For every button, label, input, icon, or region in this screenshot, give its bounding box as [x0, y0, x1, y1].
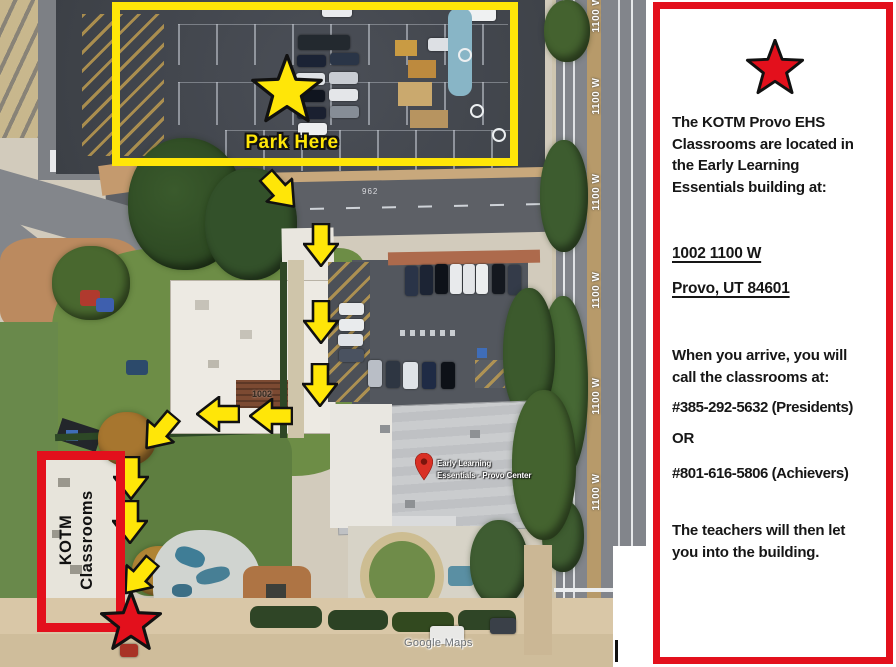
roof-vent [470, 430, 480, 438]
intro-line: the Early Learning [672, 155, 854, 177]
car [405, 266, 418, 296]
street-name-label: 1100 W [591, 267, 603, 313]
hatched-pad [475, 360, 505, 388]
map-corner-tick [615, 640, 618, 662]
car [339, 349, 364, 362]
street-name-label: 1100 W [591, 169, 603, 215]
address-line1: 1002 1100 W [672, 245, 761, 263]
trampoline [126, 360, 148, 375]
building-white-wing [330, 404, 392, 528]
street-name-label: 1100 W [591, 469, 603, 515]
hedge-row [328, 610, 388, 630]
campus-aerial-map: 962 1100 W 1100 W 1100 W 1100 W 1100 W 1… [0, 0, 646, 667]
pin-label-line1: Early Learning [437, 458, 531, 470]
phone-presidents: #385-292-5632 (Presidents) [672, 399, 853, 416]
or-label: OR [672, 430, 694, 447]
google-maps-watermark: Google Maps [404, 637, 473, 649]
car [492, 264, 505, 294]
car [476, 264, 488, 294]
chevron-marking [400, 330, 458, 336]
route-arrow-icon [196, 396, 240, 432]
tree [470, 520, 528, 606]
info-panel: The KOTM Provo EHS Classrooms are locate… [653, 2, 893, 664]
kotm-label-line2: Classrooms [77, 450, 98, 630]
car [450, 264, 462, 294]
pin-label-line2: Essentials - Provo Center [437, 470, 531, 482]
handicap-marking [477, 348, 487, 358]
address-line2: Provo, UT 84601 [672, 280, 790, 298]
route-arrow-icon [303, 223, 339, 267]
street-name-label: 1100 W [591, 373, 603, 419]
map-pin-label: Early Learning Essentials - Provo Center [437, 458, 531, 482]
dino-sculpture [172, 584, 192, 597]
route-arrow-icon [302, 363, 338, 407]
phone-achievers: #801-616-5806 (Achievers) [672, 465, 848, 482]
car [338, 334, 363, 346]
car [339, 319, 364, 331]
street-name-label: 1100 W [591, 0, 603, 37]
kotm-classrooms-label: KOTM Classrooms [56, 450, 100, 630]
intro-line: The KOTM Provo EHS [672, 112, 854, 134]
arrival-line: call the classrooms at: [672, 367, 847, 389]
car [386, 361, 400, 388]
roof-unit [240, 330, 252, 339]
roof-vent [380, 425, 390, 433]
car [463, 264, 475, 294]
vehicle [490, 618, 516, 634]
map-pin-icon [415, 453, 433, 481]
tree [540, 140, 588, 252]
intro-line: Essentials building at: [672, 177, 854, 199]
arrival-line: When you arrive, you will [672, 345, 847, 367]
car [339, 303, 364, 315]
roof-strip [388, 250, 540, 266]
road-number-label: 962 [362, 187, 378, 196]
closing-line: you into the building. [672, 542, 845, 564]
wall [524, 545, 552, 655]
intro-paragraph: The KOTM Provo EHS Classrooms are locate… [672, 112, 854, 198]
park-here-label: Park Here [224, 132, 360, 154]
destination-star-icon [100, 591, 162, 653]
roof-unit [195, 300, 209, 310]
tree [544, 0, 590, 62]
closing-line: The teachers will then let [672, 520, 845, 542]
closing-paragraph: The teachers will then let you into the … [672, 520, 845, 563]
arrival-paragraph: When you arrive, you will call the class… [672, 345, 847, 388]
car [422, 362, 436, 389]
hedge-row [250, 606, 322, 628]
car [420, 265, 433, 295]
panel-star-icon [744, 39, 806, 97]
intro-line: Classrooms are located in [672, 134, 854, 156]
roof-vent [405, 500, 415, 508]
route-arrow-icon [249, 398, 293, 434]
kotm-directions-flyer: 962 1100 W 1100 W 1100 W 1100 W 1100 W 1… [0, 0, 896, 667]
roof-unit [208, 360, 219, 368]
car [403, 362, 418, 389]
car [441, 362, 455, 389]
play-structure [96, 298, 114, 312]
car [368, 360, 382, 387]
kotm-label-line1: KOTM [56, 450, 77, 630]
route-arrow-icon [303, 300, 339, 344]
street-name-label: 1100 W [591, 73, 603, 119]
car [435, 264, 448, 294]
park-here-star-icon [251, 54, 323, 126]
tree [52, 246, 130, 320]
